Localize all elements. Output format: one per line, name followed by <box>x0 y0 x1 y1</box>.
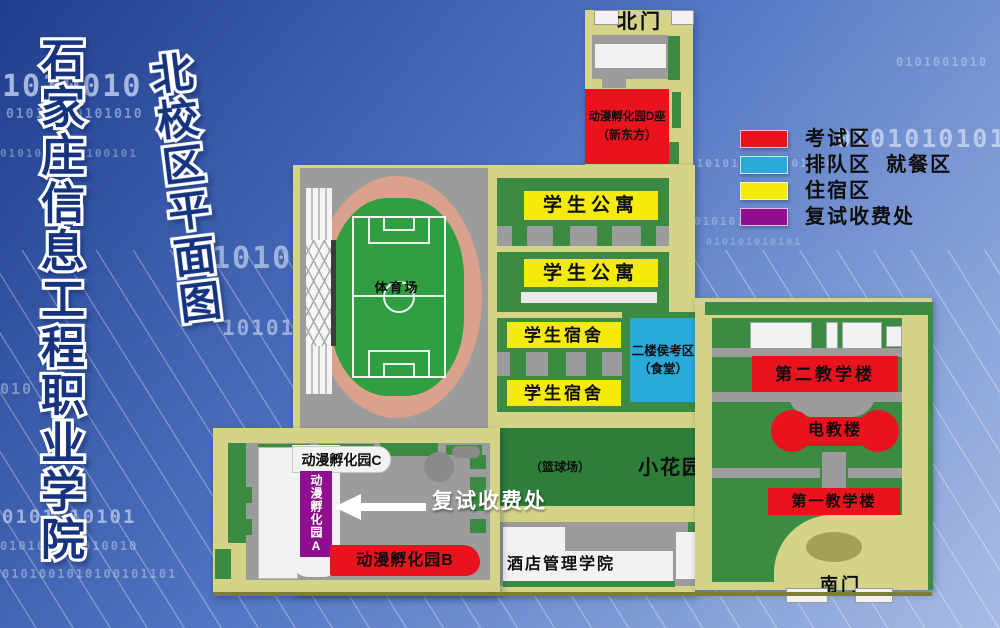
building-av-label-wrap: 电教楼 <box>771 410 899 452</box>
legend-row-queue-dining: 排队区 就餐区 <box>740 154 952 176</box>
stadium-label: 体育场 <box>374 281 419 294</box>
legend-row-fee: 复试收费处 <box>740 206 915 228</box>
legend-swatch-fee <box>740 208 788 226</box>
teaching-2-label: 第二教学楼 <box>775 366 875 383</box>
tree <box>452 446 480 458</box>
road-segment <box>712 468 820 478</box>
av-building-label: 电教楼 <box>808 423 862 439</box>
grandstand-top <box>306 188 332 240</box>
grandstand-seat-strip <box>331 240 336 346</box>
building-block <box>503 527 565 553</box>
building-incubator-a: 动漫孵化园A <box>300 471 332 557</box>
incubator-d-sublabel: （新东方） <box>597 129 657 141</box>
green-area <box>238 487 252 503</box>
building-waiting-area-canteen: 二楼侯考区 （食堂） <box>630 318 696 402</box>
green-area <box>503 581 675 587</box>
green-area <box>553 226 570 246</box>
building-incubator-c: 动漫孵化园C <box>292 446 391 473</box>
tree <box>424 452 454 482</box>
fee-office-arrow-head <box>334 494 361 520</box>
pitch-goal-box <box>383 363 415 378</box>
waiting-area-label: 二楼侯考区 <box>632 345 695 358</box>
legend-label-queue-dining: 排队区 就餐区 <box>805 155 952 175</box>
road-segment <box>602 79 626 88</box>
legend-swatch-queue <box>740 156 788 174</box>
legend-label-housing: 住宿区 <box>805 181 871 201</box>
north-gate-text: 北门 <box>617 12 663 32</box>
school-title: 石家庄信息工程职业学院 <box>26 36 90 584</box>
canteen-label: （食堂） <box>638 363 688 376</box>
green-area <box>668 142 679 164</box>
green-area <box>928 302 933 590</box>
green-area <box>597 226 612 246</box>
map-bottom-edge <box>213 592 932 596</box>
building-block <box>750 322 812 350</box>
north-gate-label: 北门 <box>598 10 682 34</box>
legend-swatch-exam <box>740 130 788 148</box>
green-area <box>672 92 681 128</box>
basketball-label-wrap: （篮球场） <box>520 458 600 476</box>
pitch-goal-box <box>383 216 415 231</box>
fee-office-pointer-label: 复试收费处 <box>432 490 547 513</box>
building-student-apartment-1: 学生公寓 <box>524 191 658 220</box>
road-segment <box>848 468 902 478</box>
building-block <box>886 326 902 347</box>
stadium-label-wrap: 体育场 <box>362 278 432 296</box>
building-student-dorm-1: 学生宿舍 <box>507 322 621 348</box>
football-pitch-markings <box>352 216 446 378</box>
teaching-1-label: 第一教学楼 <box>791 494 876 509</box>
student-dorm-label: 学生宿舍 <box>524 385 604 402</box>
green-area <box>668 36 680 80</box>
incubator-b-label: 动漫孵化园B <box>356 553 454 569</box>
green-area <box>705 302 932 315</box>
student-dorm-label: 学生宿舍 <box>524 327 604 344</box>
green-area <box>510 352 526 376</box>
hedge <box>470 519 486 533</box>
campus-map-poster: 1010010 01010010101010 0101001010100101 … <box>0 0 1000 628</box>
building-student-apartment-2: 学生公寓 <box>524 259 658 287</box>
building-block <box>595 44 666 68</box>
south-plaza-oval <box>806 532 862 562</box>
grandstand-bottom <box>306 346 332 394</box>
building-block <box>826 322 838 350</box>
legend-row-housing: 住宿区 <box>740 180 871 202</box>
building-incubator-b: 动漫孵化园B <box>330 545 480 576</box>
student-apartment-label: 学生公寓 <box>543 264 639 283</box>
hotel-college-label: 酒店管理学院 <box>507 557 615 573</box>
incubator-c-label: 动漫孵化园C <box>301 453 381 467</box>
building-teaching-1: 第一教学楼 <box>768 488 900 515</box>
green-area <box>641 226 656 246</box>
green-area <box>512 226 527 246</box>
grandstand-truss <box>306 240 332 346</box>
green-area <box>586 352 602 376</box>
building-block <box>521 292 657 303</box>
building-block <box>842 322 882 350</box>
green-area <box>238 519 252 535</box>
student-apartment-label: 学生公寓 <box>543 196 639 215</box>
green-area <box>215 549 231 579</box>
green-area <box>548 352 566 376</box>
fee-office-pointer-label-wrap: 复试收费处 <box>432 491 547 513</box>
hotel-college-label-wrap: 酒店管理学院 <box>507 555 671 575</box>
basketball-court-label: （篮球场） <box>530 461 590 473</box>
building-incubator-d: 动漫孵化园D座 （新东方） <box>585 89 669 164</box>
legend-label-exam: 考试区 <box>805 129 871 149</box>
fee-office-arrow-shaft <box>360 503 426 511</box>
incubator-a-label: 动漫孵化园A <box>310 474 322 554</box>
building-student-dorm-2: 学生宿舍 <box>507 380 621 406</box>
building-teaching-2: 第二教学楼 <box>752 356 898 392</box>
legend-swatch-housing <box>740 182 788 200</box>
legend-label-fee: 复试收费处 <box>805 207 915 227</box>
legend-row-exam: 考试区 <box>740 128 871 150</box>
incubator-d-label: 动漫孵化园D座 <box>588 112 665 124</box>
